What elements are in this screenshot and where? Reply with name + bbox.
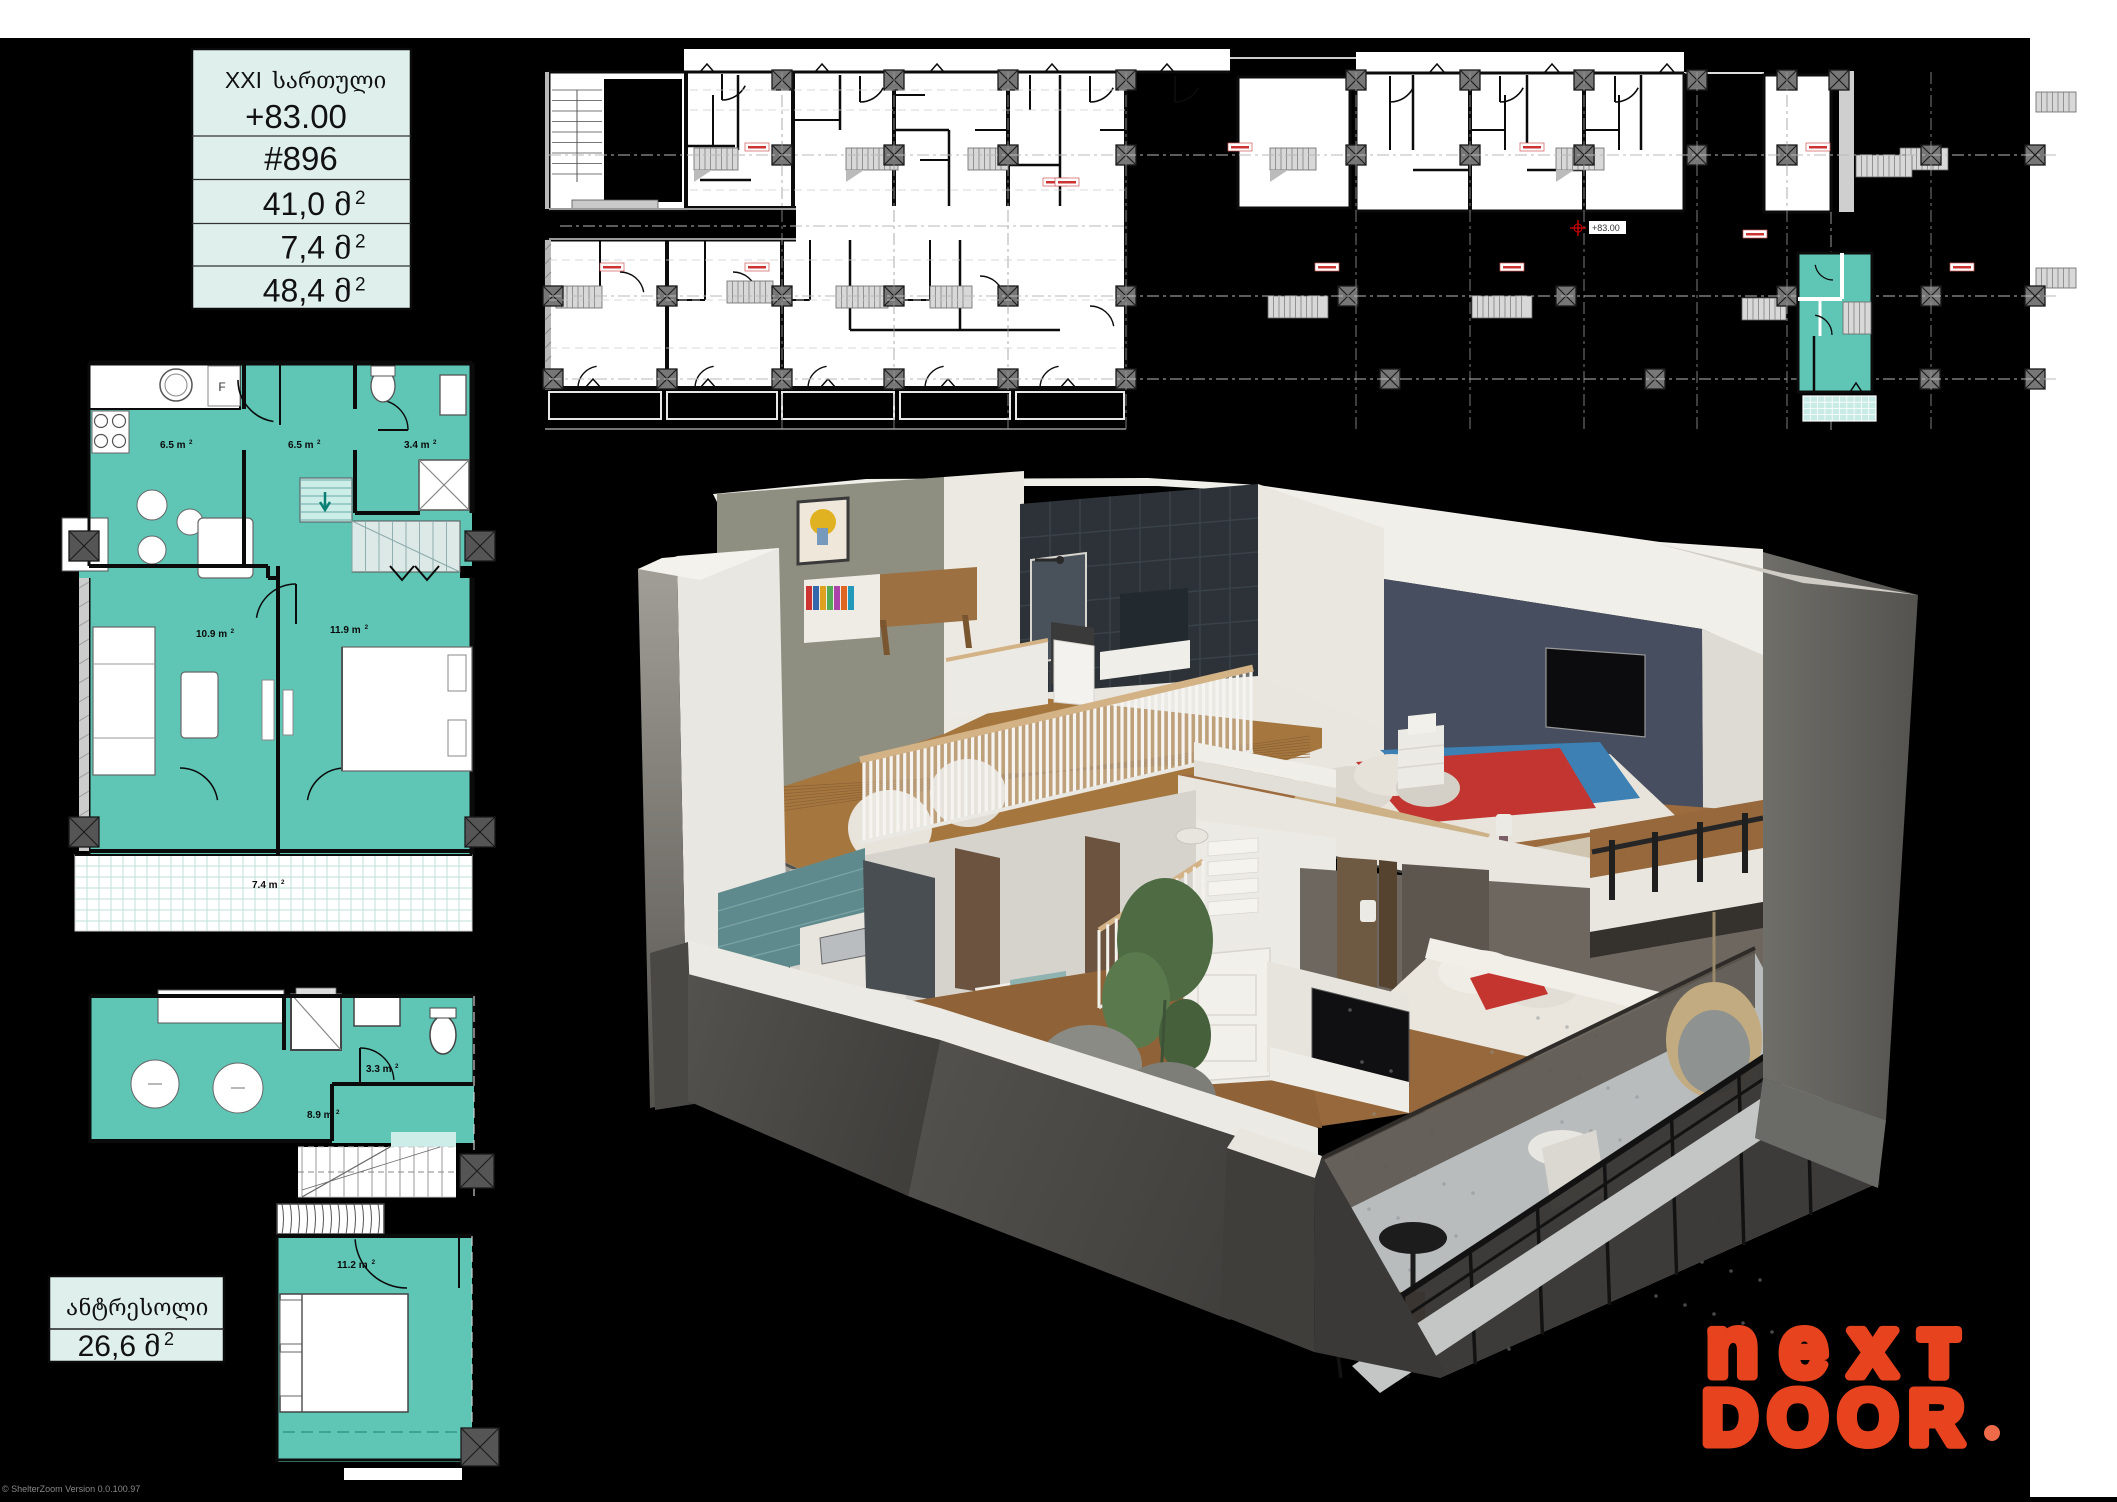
svg-text:+83.00: +83.00	[245, 98, 347, 135]
svg-text:F: F	[218, 380, 225, 394]
svg-text:8.9 m: 8.9 m	[307, 1110, 333, 1121]
svg-text:2: 2	[355, 188, 366, 209]
svg-text:#896: #896	[264, 140, 337, 177]
svg-text:2: 2	[395, 1063, 399, 1070]
svg-text:2: 2	[365, 624, 369, 631]
svg-text:XXI: XXI	[225, 67, 262, 93]
svg-text:2: 2	[433, 439, 437, 446]
svg-text:11.2 m: 11.2 m	[337, 1260, 368, 1271]
svg-text:2: 2	[281, 879, 285, 886]
svg-text:© ShelterZoom Version 0.0.100.: © ShelterZoom Version 0.0.100.97	[2, 1484, 140, 1494]
svg-text:+83.00: +83.00	[1592, 223, 1620, 233]
svg-text:7.4 m: 7.4 m	[252, 880, 278, 891]
svg-text:2: 2	[355, 232, 366, 253]
svg-text:2: 2	[336, 1109, 340, 1116]
svg-text:7,4: 7,4	[281, 230, 325, 266]
svg-text:3.4 m: 3.4 m	[404, 440, 430, 451]
svg-text:10.9 m: 10.9 m	[196, 629, 227, 640]
svg-text:6.5 m: 6.5 m	[160, 440, 186, 451]
svg-text:41,0: 41,0	[263, 186, 325, 222]
svg-text:2: 2	[372, 1259, 376, 1266]
svg-text:3.3 m: 3.3 m	[366, 1064, 392, 1075]
svg-text:2: 2	[355, 275, 366, 296]
svg-text:2: 2	[189, 439, 193, 446]
svg-text:2: 2	[164, 1329, 174, 1349]
svg-text:11.9 m: 11.9 m	[330, 625, 361, 636]
svg-text:2: 2	[231, 628, 235, 635]
svg-text:2: 2	[317, 439, 321, 446]
svg-text:26,6: 26,6	[78, 1330, 136, 1363]
svg-text:6.5 m: 6.5 m	[288, 440, 314, 451]
svg-text:48,4: 48,4	[263, 273, 325, 309]
